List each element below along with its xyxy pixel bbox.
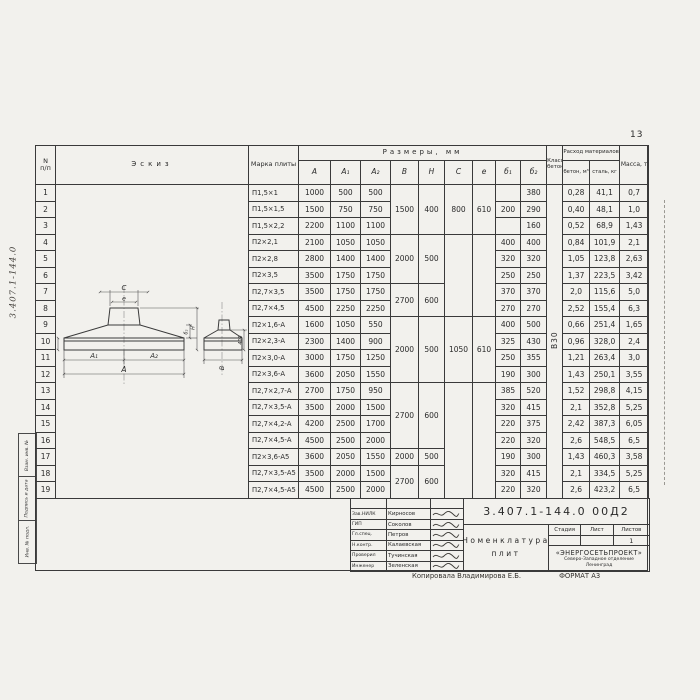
table-cell: 2500	[331, 432, 361, 449]
table-cell: 300	[521, 366, 547, 383]
table-cell: 1050	[445, 317, 473, 383]
table-cell: 3600	[299, 449, 331, 466]
table-cell: 1050	[361, 234, 391, 251]
table-cell: 1,21	[563, 350, 590, 367]
table-cell: 4500	[299, 432, 331, 449]
table-cell: 370	[496, 284, 521, 301]
table-cell: 200	[496, 201, 521, 218]
table-cell: 223,5	[590, 267, 620, 284]
table-cell: 4500	[299, 300, 331, 317]
table-cell: П2,7×3,5-А5	[249, 465, 299, 482]
table-cell: П2×2,3-А	[249, 333, 299, 350]
dim-label-C: C	[122, 284, 127, 292]
table-cell: 48,1	[590, 201, 620, 218]
dimension-lines	[58, 290, 247, 378]
col-header-concrete: бетон, м³	[563, 161, 590, 185]
dim-label-A1: A₁	[89, 352, 98, 360]
plate-sketch: C e A₁ A₂ A б₁ б₂ H B 400	[56, 280, 249, 398]
table-cell: 1100	[331, 218, 361, 235]
table-cell: 250	[496, 350, 521, 367]
table-cell: 2700	[391, 383, 419, 449]
table-cell: 0,28	[563, 185, 590, 202]
scanned-drawing-sheet: { "page": { "sheet_number": "13", "margi…	[0, 0, 700, 700]
table-cell: 1750	[331, 267, 361, 284]
table-cell: 0,96	[563, 333, 590, 350]
table-cell: 2000	[361, 482, 391, 499]
table-cell: 2000	[391, 449, 419, 466]
signature-scribble	[431, 509, 463, 518]
table-cell: 400	[521, 234, 547, 251]
table-cell: 10	[36, 333, 56, 350]
table-cell: 415	[521, 465, 547, 482]
title-block: Зав.НИЛККирносовГИПСоколовГл.спец.Петров…	[350, 498, 650, 572]
table-cell: 1500	[361, 465, 391, 482]
organization-city: Ленинград	[586, 563, 613, 569]
col-header-dimensions: Размеры, мм	[299, 146, 547, 161]
table-cell	[473, 383, 496, 499]
table-cell: 2500	[331, 482, 361, 499]
copied-by: Копировала Владимирова Е.Б.	[412, 572, 521, 580]
col-header-H: H	[419, 161, 445, 185]
stage-header-row: Стадия Лист Листов	[549, 525, 649, 536]
table-cell: 2,6	[563, 482, 590, 499]
table-cell: 251,4	[590, 317, 620, 334]
table-cell: 190	[496, 366, 521, 383]
table-cell: 2700	[299, 383, 331, 400]
table-cell: 1,0	[620, 201, 649, 218]
table-cell: 6,5	[620, 482, 649, 499]
table-cell: 460,3	[590, 449, 620, 466]
table-cell: 1600	[299, 317, 331, 334]
table-cell: 5,25	[620, 465, 649, 482]
table-cell: 750	[361, 201, 391, 218]
signature-scribble	[431, 562, 463, 571]
format-note: ФОРМАТ А3	[559, 572, 600, 580]
table-cell: 1,37	[563, 267, 590, 284]
table-cell: 2050	[331, 366, 361, 383]
table-cell	[445, 383, 473, 499]
concrete-class-cell: В30	[547, 185, 563, 499]
col-header-b1: б₁	[496, 161, 521, 185]
table-cell: 0,66	[563, 317, 590, 334]
col-header-sketch: Эскиз	[56, 146, 249, 185]
table-cell: 600	[419, 465, 445, 498]
col-header-b2: б₂	[521, 161, 547, 185]
signature-row-empty	[351, 499, 463, 508]
table-cell: 415	[521, 399, 547, 416]
table-cell: 380	[521, 185, 547, 202]
col-header-A2: A₂	[361, 161, 391, 185]
table-cell: 160	[521, 218, 547, 235]
table-cell: 270	[521, 300, 547, 317]
table-cell: 1,52	[563, 383, 590, 400]
binding-dashed-line	[664, 200, 665, 485]
table-cell: 18	[36, 465, 56, 482]
person-role: Гл.спец.	[351, 530, 387, 539]
table-cell	[496, 218, 521, 235]
table-cell: 610	[473, 185, 496, 235]
person-name: Кирносов	[387, 509, 431, 518]
table-cell: 320	[521, 432, 547, 449]
table-cell: 1400	[361, 251, 391, 268]
table-cell: 123,8	[590, 251, 620, 268]
table-cell: 600	[419, 284, 445, 317]
table-cell: 11	[36, 350, 56, 367]
table-row: 1	[36, 185, 649, 202]
table-cell: 3500	[299, 284, 331, 301]
table-cell: 430	[521, 333, 547, 350]
table-cell: П2×2,8	[249, 251, 299, 268]
col-header-A: A	[299, 161, 331, 185]
table-cell: 190	[496, 449, 521, 466]
table-cell: 400	[496, 317, 521, 334]
signature-scribble	[431, 551, 463, 560]
stamp-cell: Подпись и дата	[19, 477, 36, 520]
table-cell: 2000	[331, 399, 361, 416]
table-cell: 250	[496, 267, 521, 284]
table-cell: 1500	[391, 185, 419, 235]
table-cell: 1750	[331, 284, 361, 301]
col-header-mark: Марка плиты	[249, 146, 299, 185]
stage-value	[549, 536, 581, 545]
table-cell: 9	[36, 317, 56, 334]
table-cell: 375	[521, 416, 547, 433]
table-cell: 900	[361, 333, 391, 350]
table-cell: 355	[521, 350, 547, 367]
table-cell: 15	[36, 416, 56, 433]
table-cell: 1750	[331, 383, 361, 400]
table-cell: 115,6	[590, 284, 620, 301]
table-cell: 13	[36, 383, 56, 400]
stage-value-row: 1	[549, 536, 649, 546]
table-cell: П2,7×3,5-А	[249, 399, 299, 416]
table-cell: П2×3,0-А	[249, 350, 299, 367]
table-cell: 3	[36, 218, 56, 235]
table-cell: 2,63	[620, 251, 649, 268]
table-cell: 387,3	[590, 416, 620, 433]
table-cell: 220	[496, 432, 521, 449]
plate-table-body: 1	[36, 185, 649, 499]
signature-scribble	[431, 541, 463, 550]
signature-row: ИнженерЗеленская	[351, 561, 463, 571]
table-cell: 320	[521, 482, 547, 499]
table-cell: 320	[496, 465, 521, 482]
table-cell: 7	[36, 284, 56, 301]
table-cell: 1500	[361, 399, 391, 416]
table-cell: 17	[36, 449, 56, 466]
table-cell: 0,52	[563, 218, 590, 235]
table-cell: 0,84	[563, 234, 590, 251]
table-cell: 6,05	[620, 416, 649, 433]
table-cell: 220	[496, 416, 521, 433]
table-cell: 2000	[331, 465, 361, 482]
table-cell: 220	[496, 482, 521, 499]
table-cell: 500	[361, 185, 391, 202]
table-cell: П1,5×1,5	[249, 201, 299, 218]
person-role: Н.контр.	[351, 541, 387, 550]
signature-scribble	[431, 530, 463, 539]
table-cell: 325	[496, 333, 521, 350]
table-cell: 1700	[361, 416, 391, 433]
table-cell: 8	[36, 300, 56, 317]
table-cell	[496, 185, 521, 202]
table-cell: П2×3,6-А5	[249, 449, 299, 466]
table-cell: 68,9	[590, 218, 620, 235]
table-cell: 2700	[391, 465, 419, 498]
organization-name: «ЭНЕРГОСЕТЬПРОЕКТ»	[556, 549, 643, 557]
col-header-steel: сталь, кг	[590, 161, 620, 185]
table-cell: 400	[419, 185, 445, 235]
table-cell: 2250	[361, 300, 391, 317]
table-cell: 1500	[299, 201, 331, 218]
table-cell: 520	[521, 383, 547, 400]
table-cell: 1,43	[563, 449, 590, 466]
table-cell: 1400	[331, 333, 361, 350]
table-cell: 550	[361, 317, 391, 334]
table-cell: 2,42	[563, 416, 590, 433]
table-cell: 1,43	[620, 218, 649, 235]
table-cell: 334,5	[590, 465, 620, 482]
table-cell: 1550	[361, 366, 391, 383]
table-cell: 14	[36, 399, 56, 416]
table-cell: 298,8	[590, 383, 620, 400]
table-cell: 2,1	[563, 399, 590, 416]
table-cell: 423,2	[590, 482, 620, 499]
table-cell: 2000	[391, 317, 419, 383]
table-cell: 500	[521, 317, 547, 334]
drawing-title-line2: плит	[492, 548, 521, 561]
dim-label-e: e	[122, 296, 126, 303]
table-cell: 3600	[299, 366, 331, 383]
table-cell: 1050	[331, 234, 361, 251]
col-header-C: C	[445, 161, 473, 185]
table-cell: 1750	[361, 284, 391, 301]
table-cell: П2×3,6-А	[249, 366, 299, 383]
person-name: Соколов	[387, 520, 431, 529]
table-cell: 600	[419, 383, 445, 449]
margin-doc-number-text: 3.407.1-144.0	[8, 246, 18, 319]
table-cell: 950	[361, 383, 391, 400]
table-cell: 1,05	[563, 251, 590, 268]
table-cell: 500	[419, 234, 445, 284]
sheets-header: Листов	[614, 525, 649, 535]
table-cell: 2000	[391, 234, 419, 284]
table-cell: 2700	[391, 284, 419, 317]
table-cell: 2000	[361, 432, 391, 449]
signature-row: Н.контр.Калаевская	[351, 540, 463, 550]
table-cell: 4,15	[620, 383, 649, 400]
table-cell: 2	[36, 201, 56, 218]
table-cell: 2,52	[563, 300, 590, 317]
margin-doc-number: 3.407.1-144.0	[1, 226, 25, 338]
table-cell: 385	[496, 383, 521, 400]
table-cell: П2×2,1	[249, 234, 299, 251]
table-cell: 1000	[299, 185, 331, 202]
dim-label-A: A	[120, 365, 126, 374]
table-cell: 2,4	[620, 333, 649, 350]
stamp-cell: Инв. № подл.	[19, 521, 36, 563]
col-header-A1: A₁	[331, 161, 361, 185]
table-cell: 6,3	[620, 300, 649, 317]
dim-label-b1: б₁	[56, 342, 58, 347]
table-cell: 19	[36, 482, 56, 499]
table-cell: 0,7	[620, 185, 649, 202]
table-cell: 320	[496, 399, 521, 416]
person-role: Зав.НИЛК	[351, 509, 387, 518]
drawing-title-line1: Номенклатура	[462, 535, 550, 548]
table-cell: 3000	[299, 350, 331, 367]
table-cell: П2,7×4,2-А	[249, 416, 299, 433]
table-cell: 101,9	[590, 234, 620, 251]
table-cell: 5	[36, 251, 56, 268]
table-cell: 1100	[361, 218, 391, 235]
col-header-e: e	[473, 161, 496, 185]
person-role: Инженер	[351, 562, 387, 571]
person-name: Тучинская	[387, 551, 431, 560]
section-outlines	[64, 308, 242, 350]
col-header-num: Nп/п	[36, 146, 56, 185]
table-cell: 290	[521, 201, 547, 218]
table-cell: 1050	[331, 317, 361, 334]
dim-label-400: 400	[238, 336, 244, 345]
person-name: Петров	[387, 530, 431, 539]
sheet-value	[581, 536, 613, 545]
table-cell: П2,7×2,7-А	[249, 383, 299, 400]
person-role: ГИП	[351, 520, 387, 529]
table-cell: 400	[496, 234, 521, 251]
table-cell	[445, 234, 473, 317]
table-cell: 1,43	[563, 366, 590, 383]
table-cell: 500	[331, 185, 361, 202]
table-cell: 2,1	[620, 234, 649, 251]
table-cell: 300	[521, 449, 547, 466]
signature-row: ПроверилТучинская	[351, 550, 463, 560]
table-cell: 3500	[299, 465, 331, 482]
table-cell: 500	[419, 317, 445, 383]
stage-header: Стадия	[549, 525, 581, 535]
sheet-number: 13	[630, 130, 643, 140]
col-header-consumption: Расход материалов	[563, 146, 620, 161]
signature-row: Гл.спец.Петров	[351, 529, 463, 539]
table-cell: 12	[36, 366, 56, 383]
person-name: Калаевская	[387, 541, 431, 550]
dim-label-H: H	[191, 326, 197, 330]
table-cell: 320	[521, 251, 547, 268]
table-cell: 2250	[331, 300, 361, 317]
table-cell: 6	[36, 267, 56, 284]
table-cell: 6,5	[620, 432, 649, 449]
table-cell: 1750	[361, 267, 391, 284]
table-cell: 4	[36, 234, 56, 251]
table-cell: 3,58	[620, 449, 649, 466]
table-cell: 1550	[361, 449, 391, 466]
table-cell: 5,0	[620, 284, 649, 301]
col-header-concrete-class: Класс бетона	[547, 146, 563, 185]
dim-label-B: B	[218, 365, 226, 370]
table-cell: 3500	[299, 267, 331, 284]
col-header-B: B	[391, 161, 419, 185]
table-cell: 2,0	[563, 284, 590, 301]
table-cell: П2,7×3,5	[249, 284, 299, 301]
table-cell: 320	[496, 251, 521, 268]
table-cell: 2200	[299, 218, 331, 235]
table-cell: 3,0	[620, 350, 649, 367]
table-cell: 1750	[331, 350, 361, 367]
signature-row: ГИПСоколов	[351, 519, 463, 529]
table-cell: 800	[445, 185, 473, 235]
table-cell: 16	[36, 432, 56, 449]
table-cell: П2×3,5	[249, 267, 299, 284]
sheets-value: 1	[614, 536, 649, 545]
table-cell: 2100	[299, 234, 331, 251]
table-cell: 2,6	[563, 432, 590, 449]
table-cell: 2300	[299, 333, 331, 350]
table-cell: 610	[473, 317, 496, 383]
table-cell: 4200	[299, 416, 331, 433]
table-cell: 328,0	[590, 333, 620, 350]
table-cell: 4500	[299, 482, 331, 499]
copy-line: Копировала Владимирова Е.Б. ФОРМАТ А3	[412, 572, 600, 580]
table-cell: 41,1	[590, 185, 620, 202]
signature-row: Зав.НИЛККирносов	[351, 508, 463, 518]
table-cell: 548,5	[590, 432, 620, 449]
dim-label-A2: A₂	[149, 352, 158, 360]
table-cell: 155,4	[590, 300, 620, 317]
table-cell: 250,1	[590, 366, 620, 383]
col-header-mass: Масса, т	[620, 146, 649, 185]
stamp-cell: Взам. инв. №	[19, 434, 36, 477]
table-cell: 2050	[331, 449, 361, 466]
dim-label-b2: б₂	[184, 330, 190, 335]
table-cell: П2,7×4,5	[249, 300, 299, 317]
table-cell	[473, 234, 496, 317]
organization-block: «ЭНЕРГОСЕТЬПРОЕКТ» Северо-Западное отдел…	[549, 546, 649, 571]
document-number: 3.407.1-144.0 00Д2	[464, 499, 649, 525]
table-cell: 1	[36, 185, 56, 202]
table-cell: 263,4	[590, 350, 620, 367]
table-cell: 370	[521, 284, 547, 301]
signature-scribble	[431, 520, 463, 529]
table-cell: 352,8	[590, 399, 620, 416]
table-cell: 270	[496, 300, 521, 317]
signature-block: Зав.НИЛККирносовГИПСоколовГл.спец.Петров…	[351, 499, 464, 571]
nomenclature-table: Nп/п Эскиз Марка плиты Размеры, мм Класс…	[35, 145, 649, 499]
table-cell: 3,42	[620, 267, 649, 284]
table-cell: П2,7×4,5-А5	[249, 482, 299, 499]
table-cell: 2500	[331, 416, 361, 433]
sheet-header: Лист	[581, 525, 613, 535]
table-cell: П1,5×1	[249, 185, 299, 202]
person-role: Проверил	[351, 551, 387, 560]
sketch-labels: C e A₁ A₂ A б₁ б₂ H B 400	[56, 284, 244, 374]
person-name: Зеленская	[387, 562, 431, 571]
table-cell: 2800	[299, 251, 331, 268]
table-cell: П2,7×4,5-А	[249, 432, 299, 449]
table-cell: 500	[419, 449, 445, 466]
table-cell: 5,25	[620, 399, 649, 416]
table-cell: 0,40	[563, 201, 590, 218]
table-cell: 3,55	[620, 366, 649, 383]
table-cell: 1400	[331, 251, 361, 268]
table-cell: 2,1	[563, 465, 590, 482]
sketch-cell: C e A₁ A₂ A б₁ б₂ H B 400	[56, 185, 249, 499]
drawing-title: Номенклатура плит	[464, 525, 549, 571]
table-cell: 3500	[299, 399, 331, 416]
table-cell: П1,5×2,2	[249, 218, 299, 235]
table-cell: 1250	[361, 350, 391, 367]
table-cell: 250	[521, 267, 547, 284]
table-cell: 1,65	[620, 317, 649, 334]
